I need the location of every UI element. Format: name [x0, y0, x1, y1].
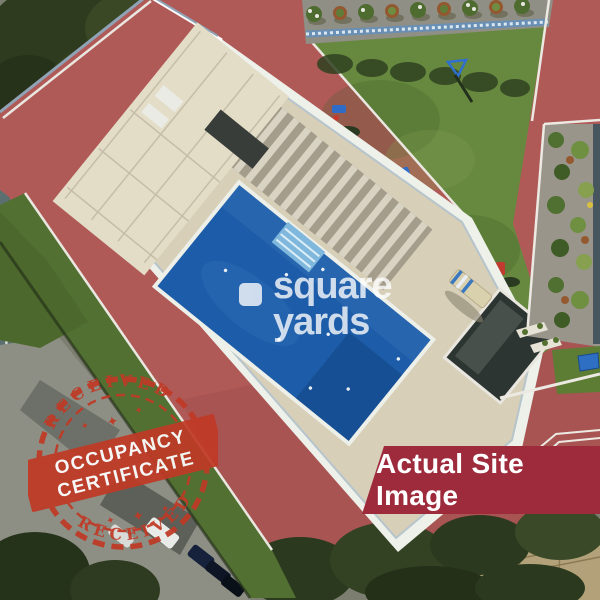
svg-text:✦: ✦ [105, 515, 116, 528]
stamp-arc-top-text: RECEIVED [32, 368, 180, 435]
svg-text:RECEIVED: RECEIVED [32, 368, 180, 435]
svg-text:✦: ✦ [80, 420, 91, 433]
svg-text:✦: ✦ [105, 413, 121, 431]
banner-label: Actual Site Image [362, 448, 600, 512]
svg-text:✦: ✦ [134, 405, 145, 418]
occupancy-certificate-stamp: RECEIVED RECEIVED ✦ ✦ ✦ ✦ ✦ ✦ OCCUPANCY … [28, 368, 218, 558]
svg-text:✦: ✦ [131, 508, 147, 526]
pool-equipment-box [578, 353, 599, 371]
lawn-patch-right [552, 346, 600, 394]
actual-site-image-banner: Actual Site Image [362, 446, 600, 514]
listing-photo-frame: square yards RECEIVED RECEIVED ✦ ✦ ✦ ✦ [0, 0, 600, 600]
